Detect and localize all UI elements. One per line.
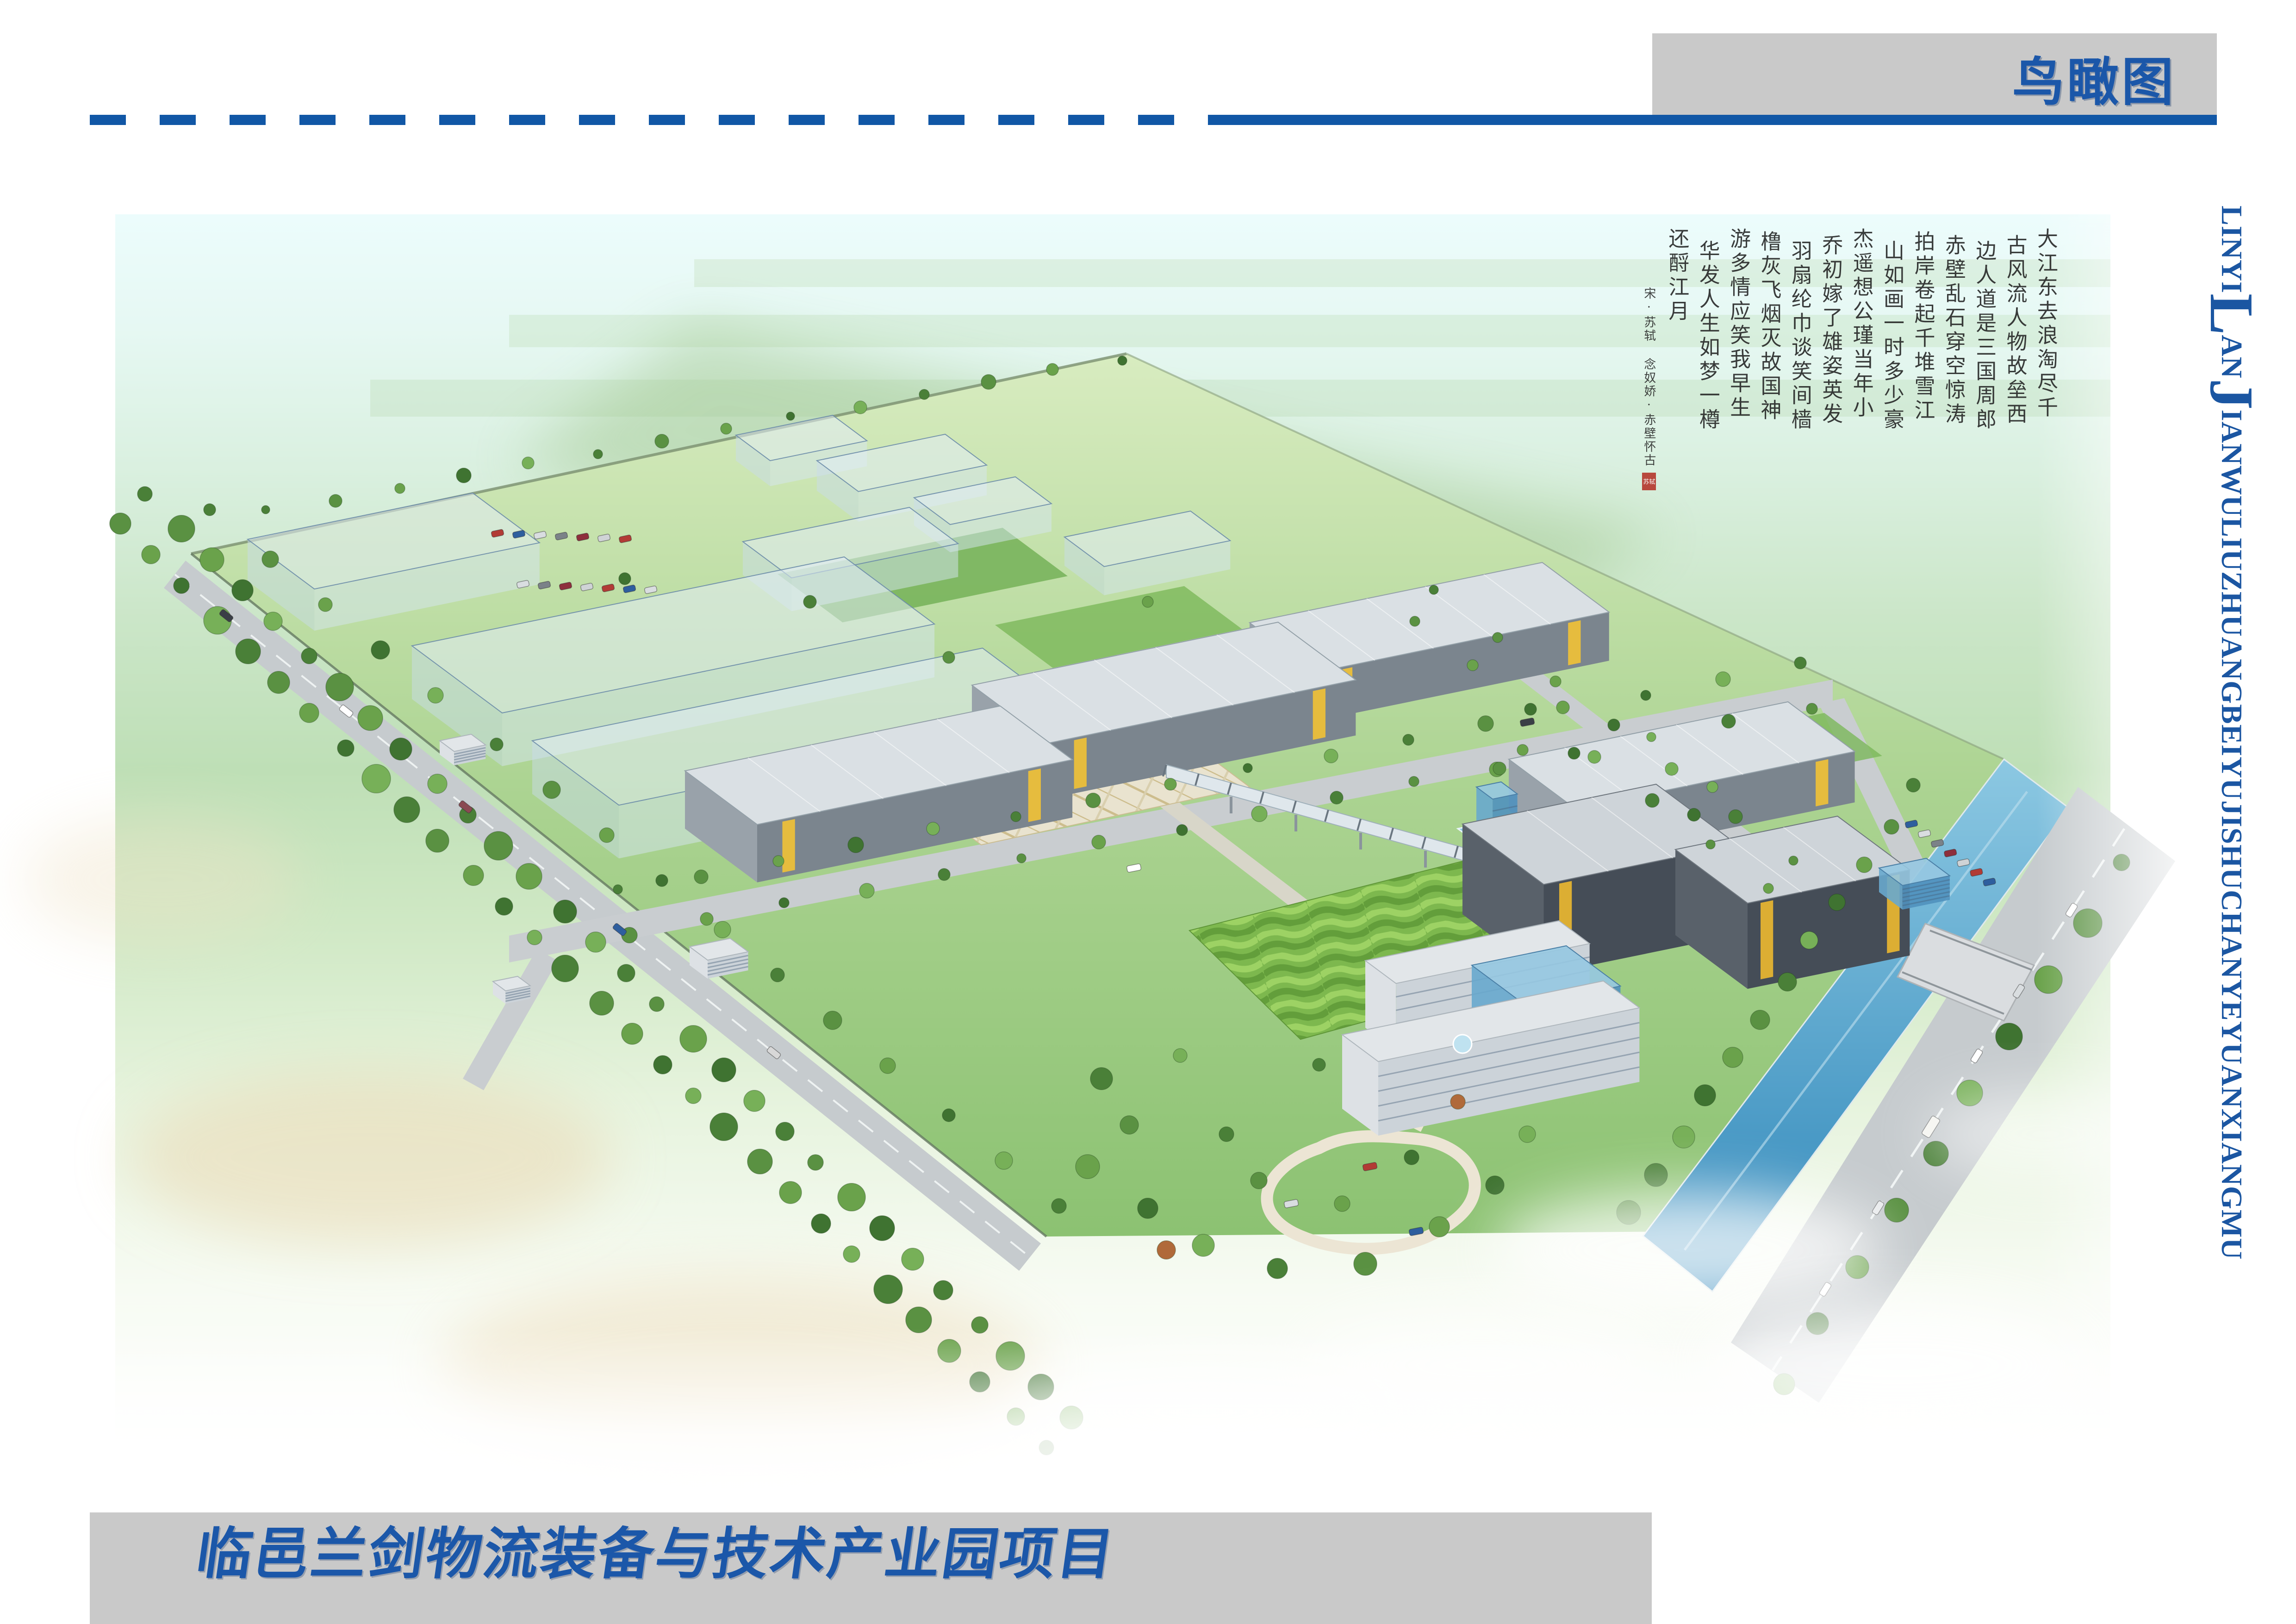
poem-column: 边人道是三国周郎 bbox=[1972, 240, 1996, 506]
footer-bar: 临邑兰剑物流装备与技术产业园项目 bbox=[90, 1512, 1652, 1624]
section-header: 鸟瞰图 bbox=[1652, 33, 2217, 115]
poem-column: 山如画一时多少豪 bbox=[1880, 240, 1904, 506]
poem-column: 华发人生如梦一樽 bbox=[1696, 240, 1719, 506]
side-text-segment: IANWULIUZHUANGBEIYUJISHUCHANYEYUANXIANGM… bbox=[2215, 410, 2249, 1260]
side-text-segment: AN bbox=[2215, 335, 2249, 378]
calligraphy-poem: 大江东去浪淘尽千 古风流人物故垒西 边人道是三国周郎 赤壁乱石穿空惊涛 拍岸卷起… bbox=[1620, 228, 2057, 506]
poem-column: 古风流人物故垒西 bbox=[2003, 234, 2026, 506]
poem-column: 乔初嫁了雄姿英发 bbox=[1819, 234, 1842, 506]
side-text-dropcap: J bbox=[2201, 379, 2263, 410]
poem-column: 赤壁乱石穿空惊涛 bbox=[1941, 234, 1965, 506]
side-text-segment: LINYI bbox=[2215, 206, 2249, 294]
poem-column: 杰遥想公瑾当年小 bbox=[1849, 228, 1873, 506]
poem-signature: 宋·苏轼 念奴娇·赤壁怀古 bbox=[1641, 287, 1658, 467]
poem-column: 橹灰飞烟灭故国神 bbox=[1757, 231, 1780, 506]
poem-column: 大江东去浪淘尽千 bbox=[2034, 228, 2057, 506]
project-title: 临邑兰剑物流装备与技术产业园项目 bbox=[193, 1526, 1119, 1582]
poem-column: 还酹江月 bbox=[1665, 228, 1688, 506]
top-solid-line bbox=[1213, 115, 2217, 125]
seal-stamp-icon: 苏轼 bbox=[1642, 473, 1656, 490]
project-name-vertical: LINYILANJIANWULIUZHUANGBEIYUJISHUCHANYEY… bbox=[2203, 206, 2260, 1497]
poem-column: 羽扇纶巾谈笑间樯 bbox=[1788, 240, 1811, 506]
poem-column: 游多情应笑我早生 bbox=[1727, 228, 1750, 506]
section-title: 鸟瞰图 bbox=[2012, 56, 2176, 108]
side-text-dropcap: L bbox=[2201, 294, 2263, 335]
poem-column: 拍岸卷起千堆雪江 bbox=[1911, 231, 1934, 506]
top-dashed-line bbox=[90, 115, 1213, 125]
presentation-page: { "header": { "section_label": "鸟瞰图" }, … bbox=[0, 0, 2296, 1624]
poem-signature-block: 宋·苏轼 念奴娇·赤壁怀古 苏轼 bbox=[1641, 287, 1658, 506]
